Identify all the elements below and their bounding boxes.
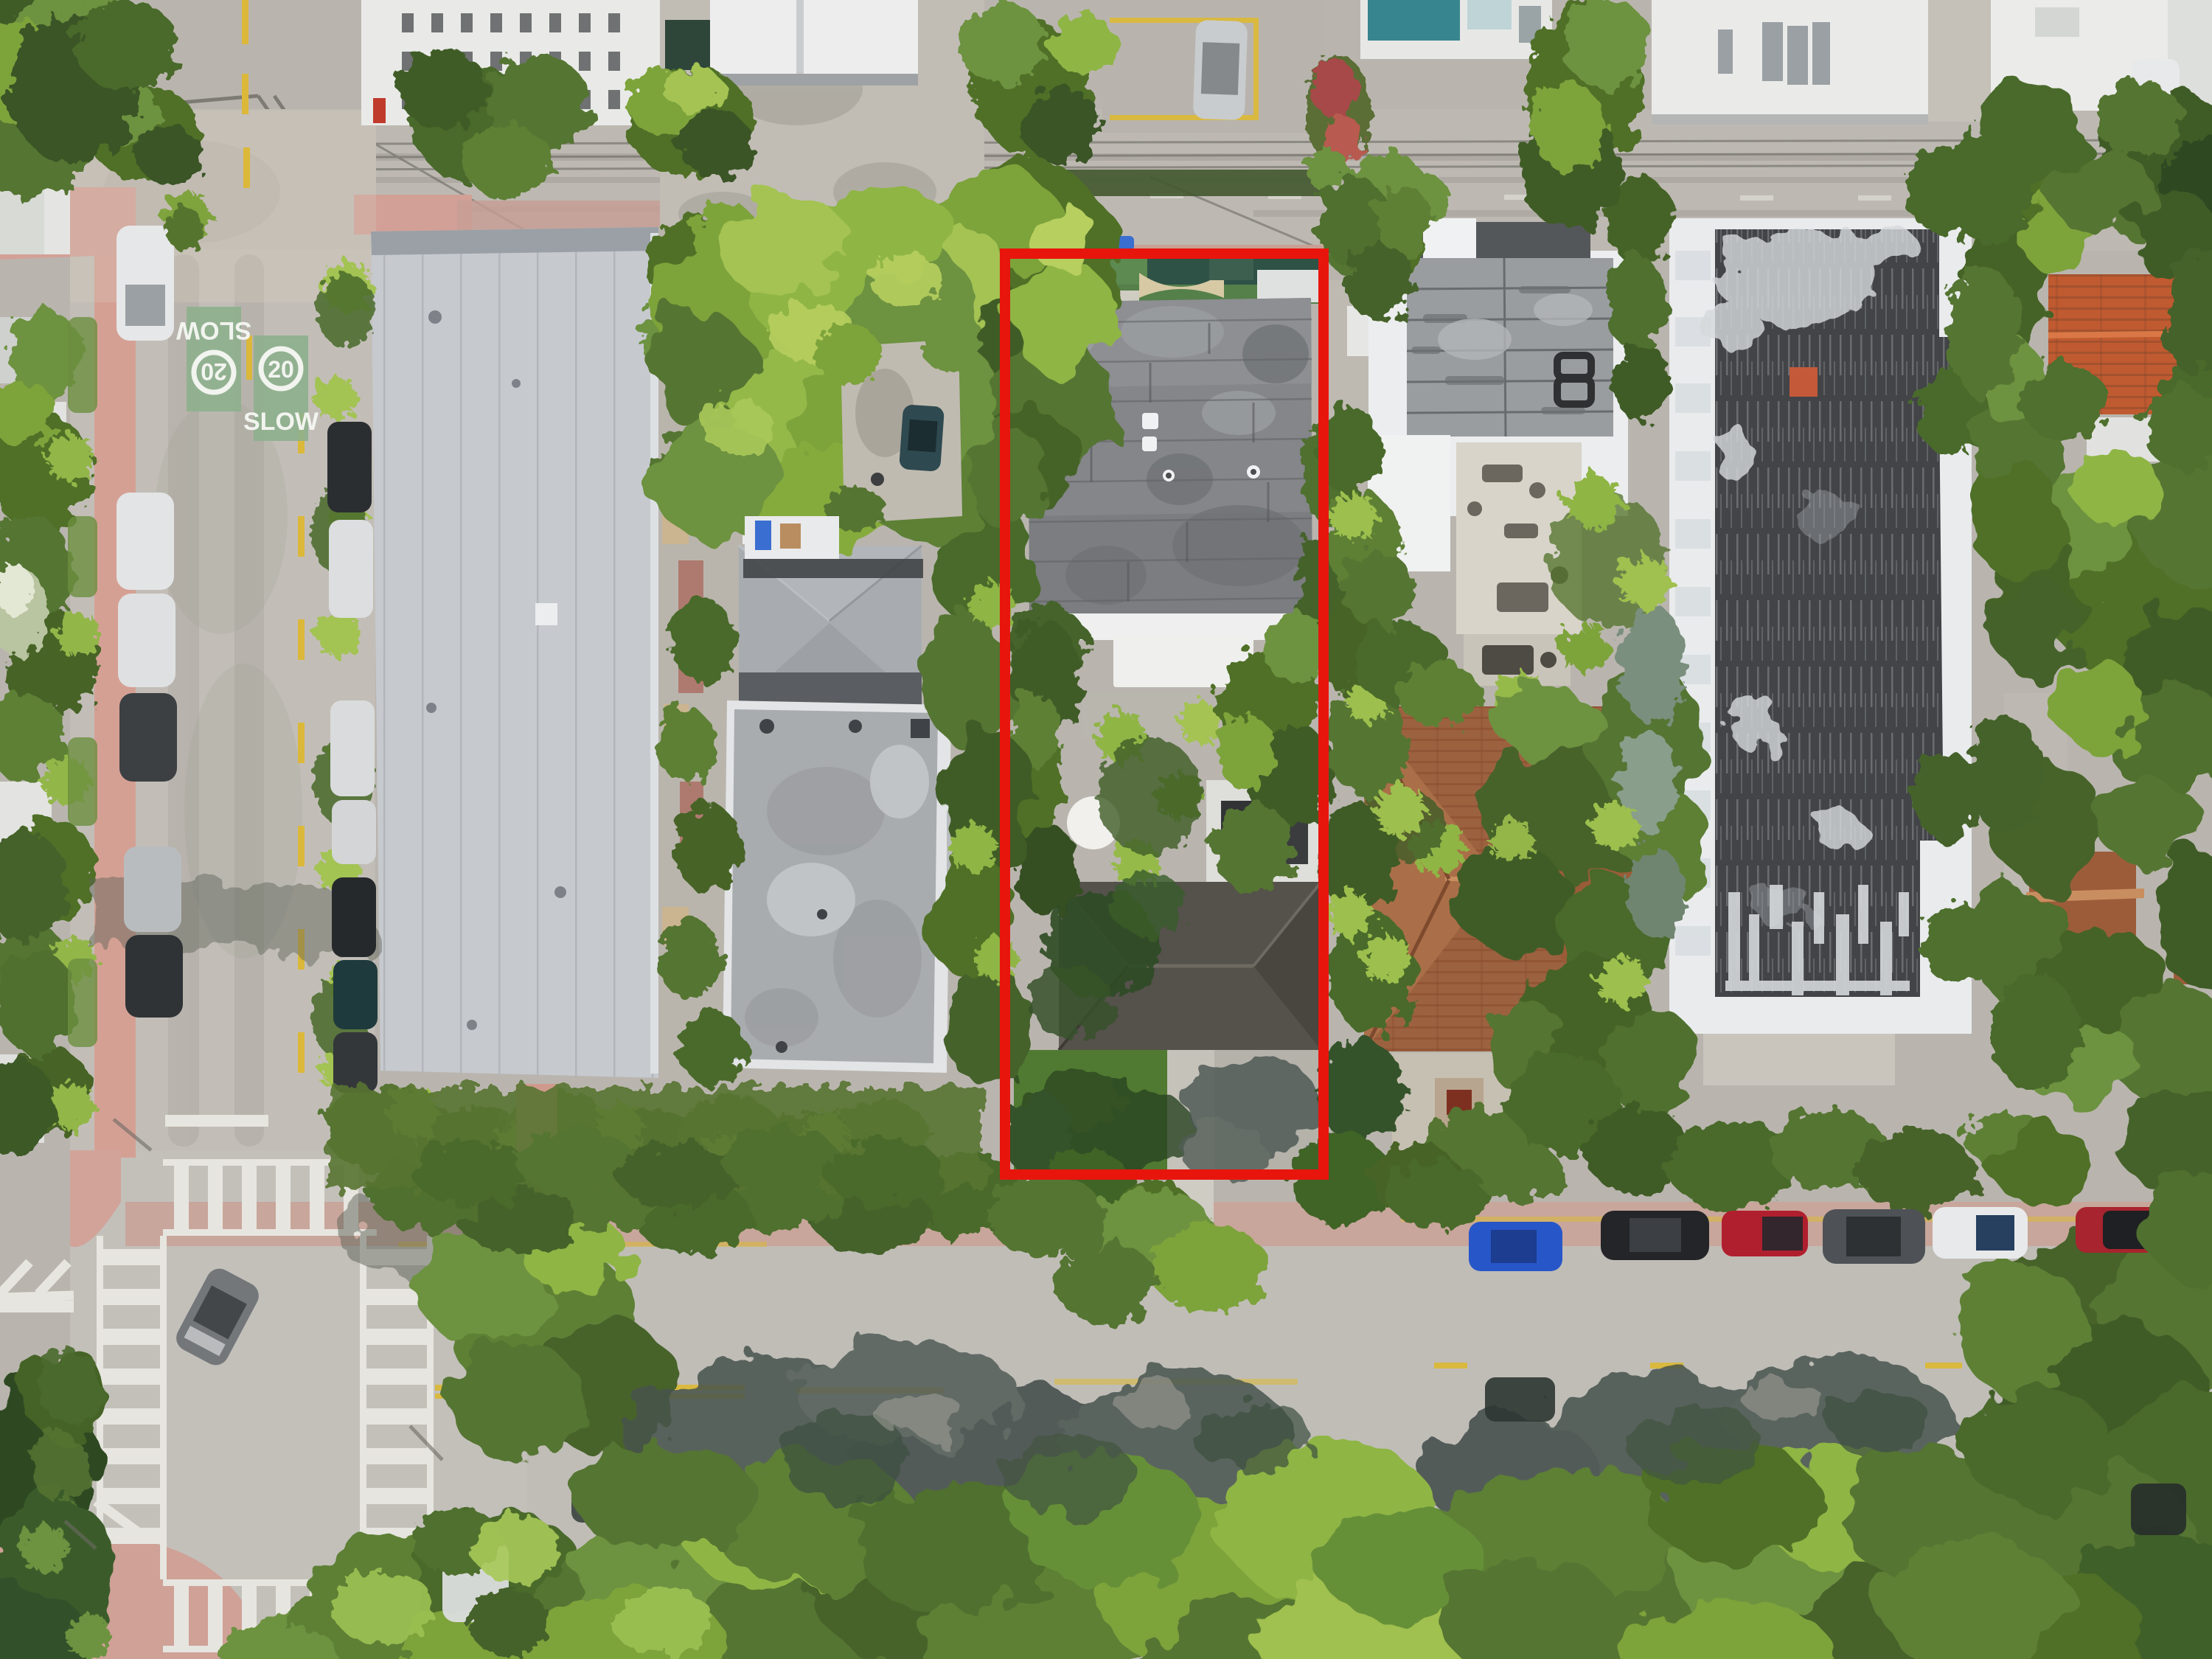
svg-text:20: 20 — [201, 358, 227, 385]
svg-text:SLOW: SLOW — [175, 316, 251, 344]
svg-text:SLOW: SLOW — [243, 408, 319, 436]
svg-text:20: 20 — [268, 356, 294, 383]
